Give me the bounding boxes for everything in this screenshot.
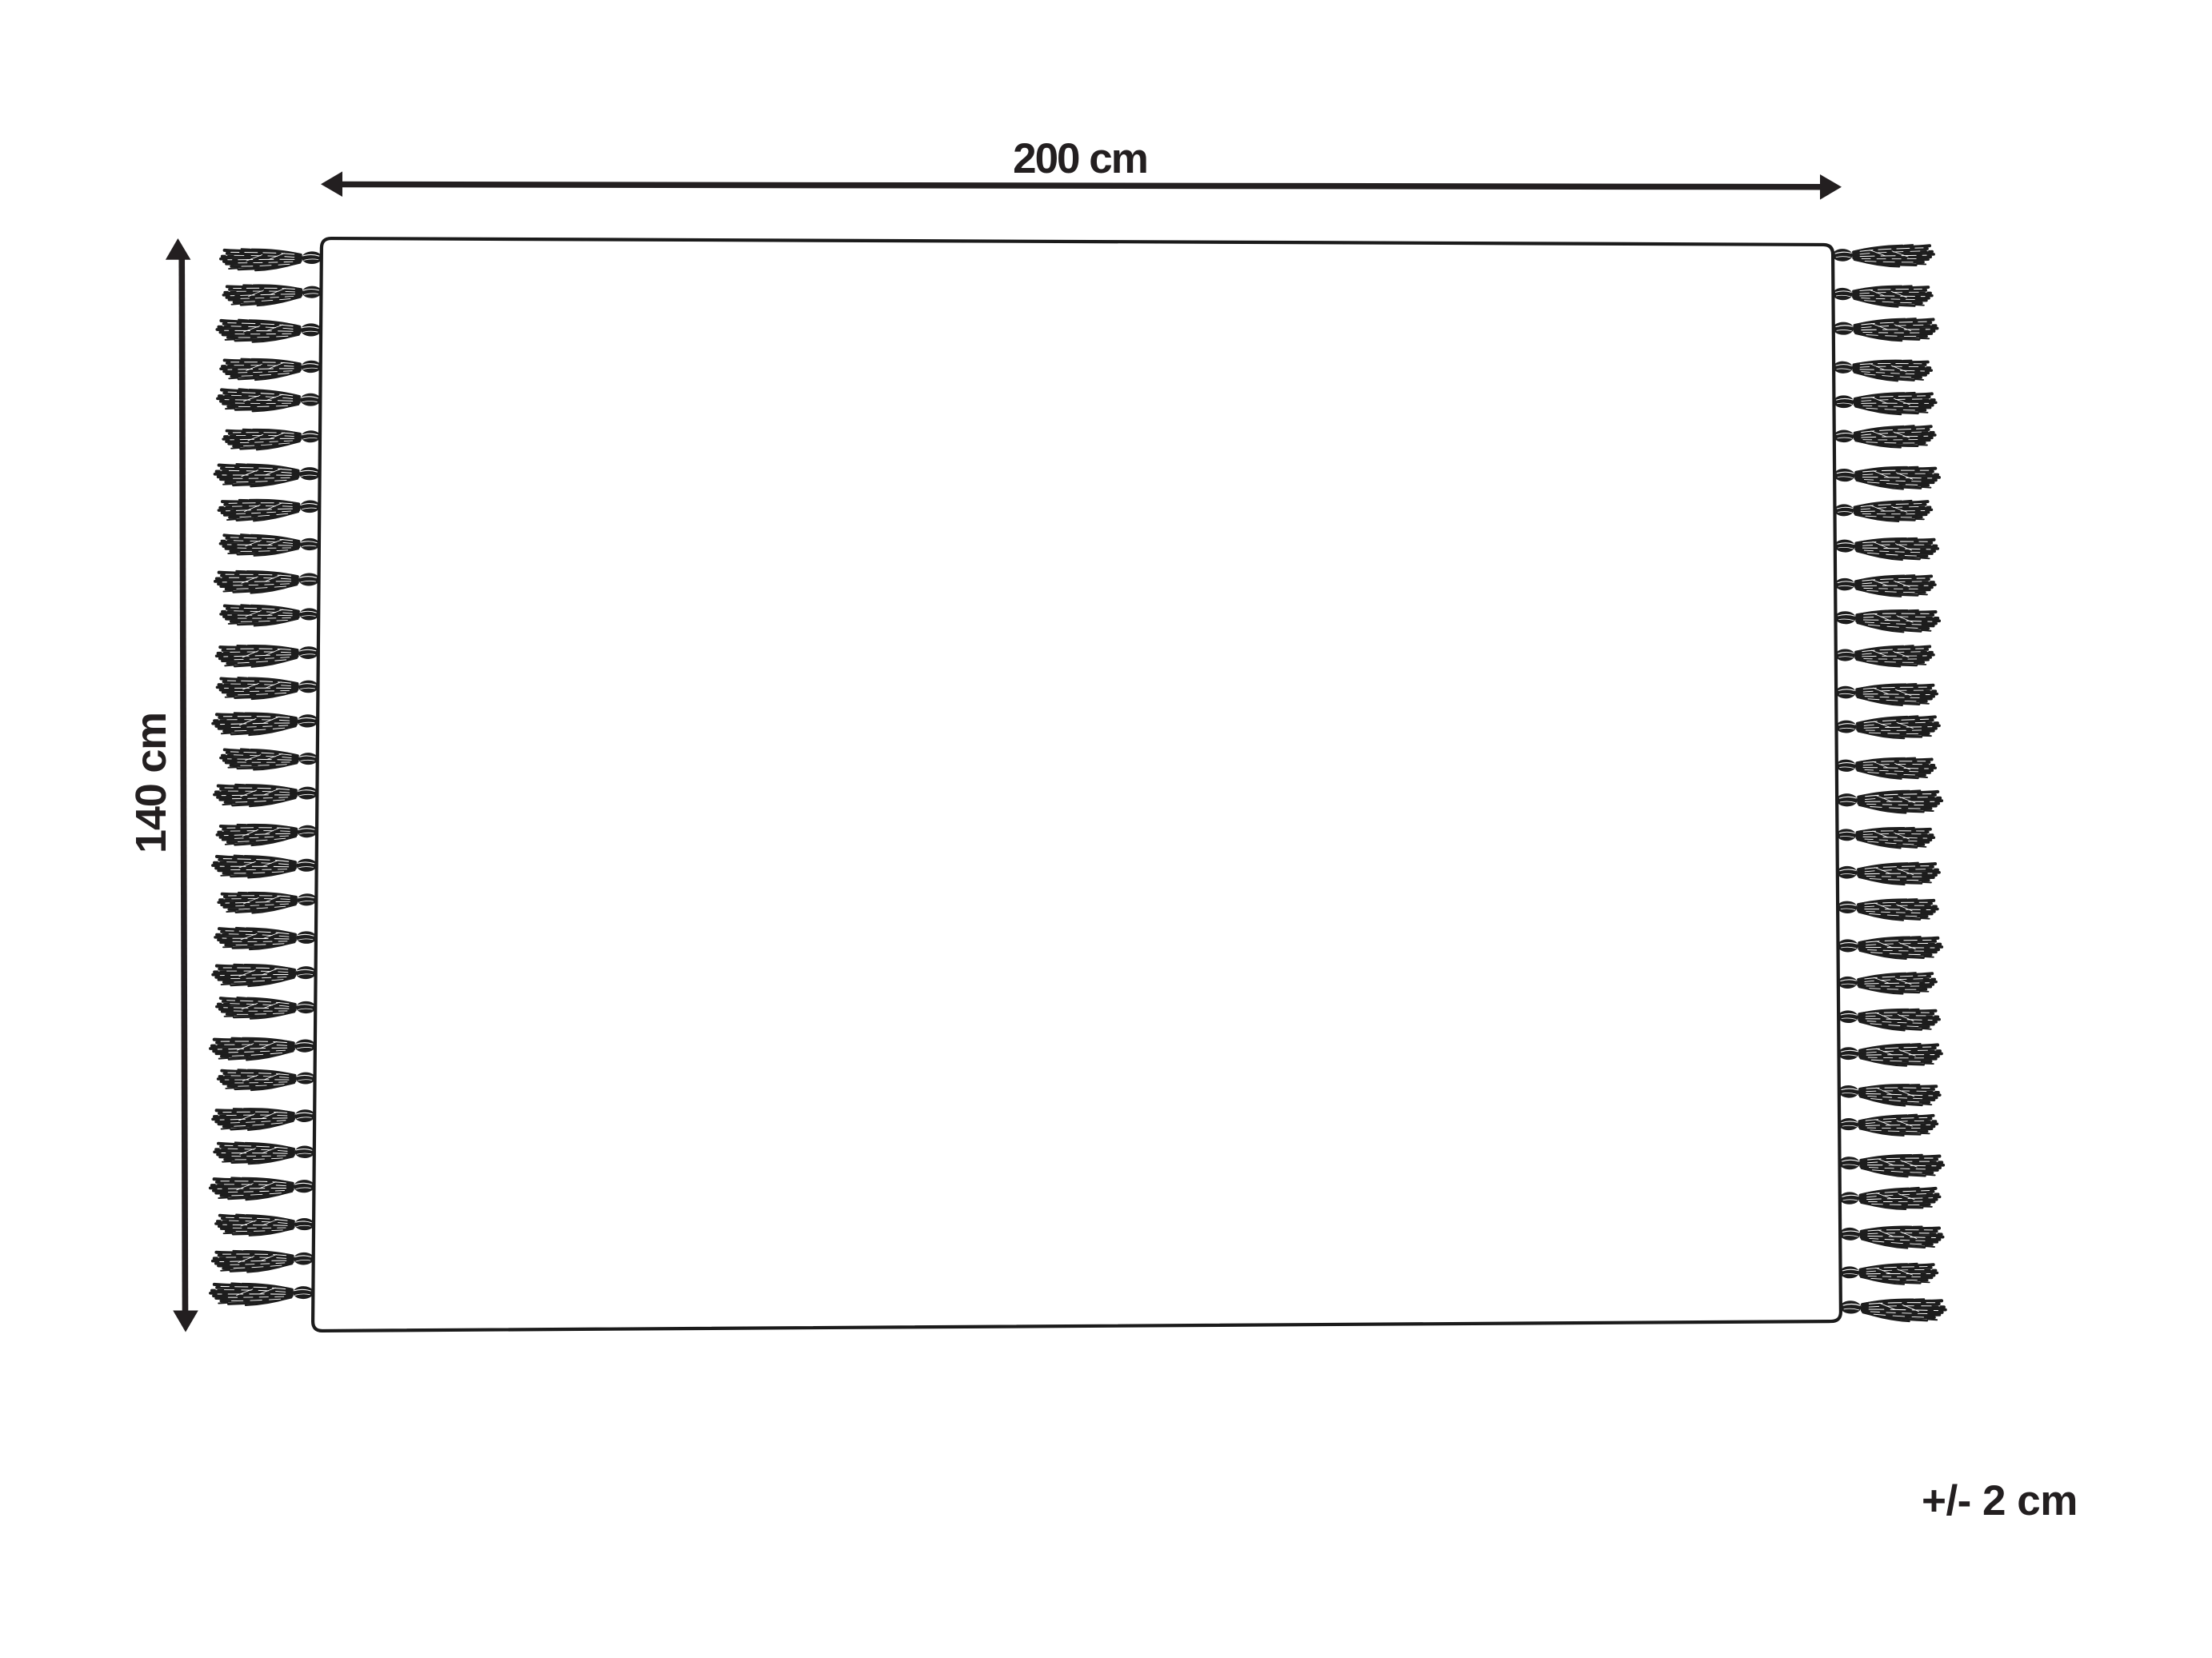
svg-text:140 cm: 140 cm [127,713,175,853]
svg-text:200 cm: 200 cm [1013,135,1147,182]
svg-text:+/- 2 cm: +/- 2 cm [1922,1477,2078,1524]
